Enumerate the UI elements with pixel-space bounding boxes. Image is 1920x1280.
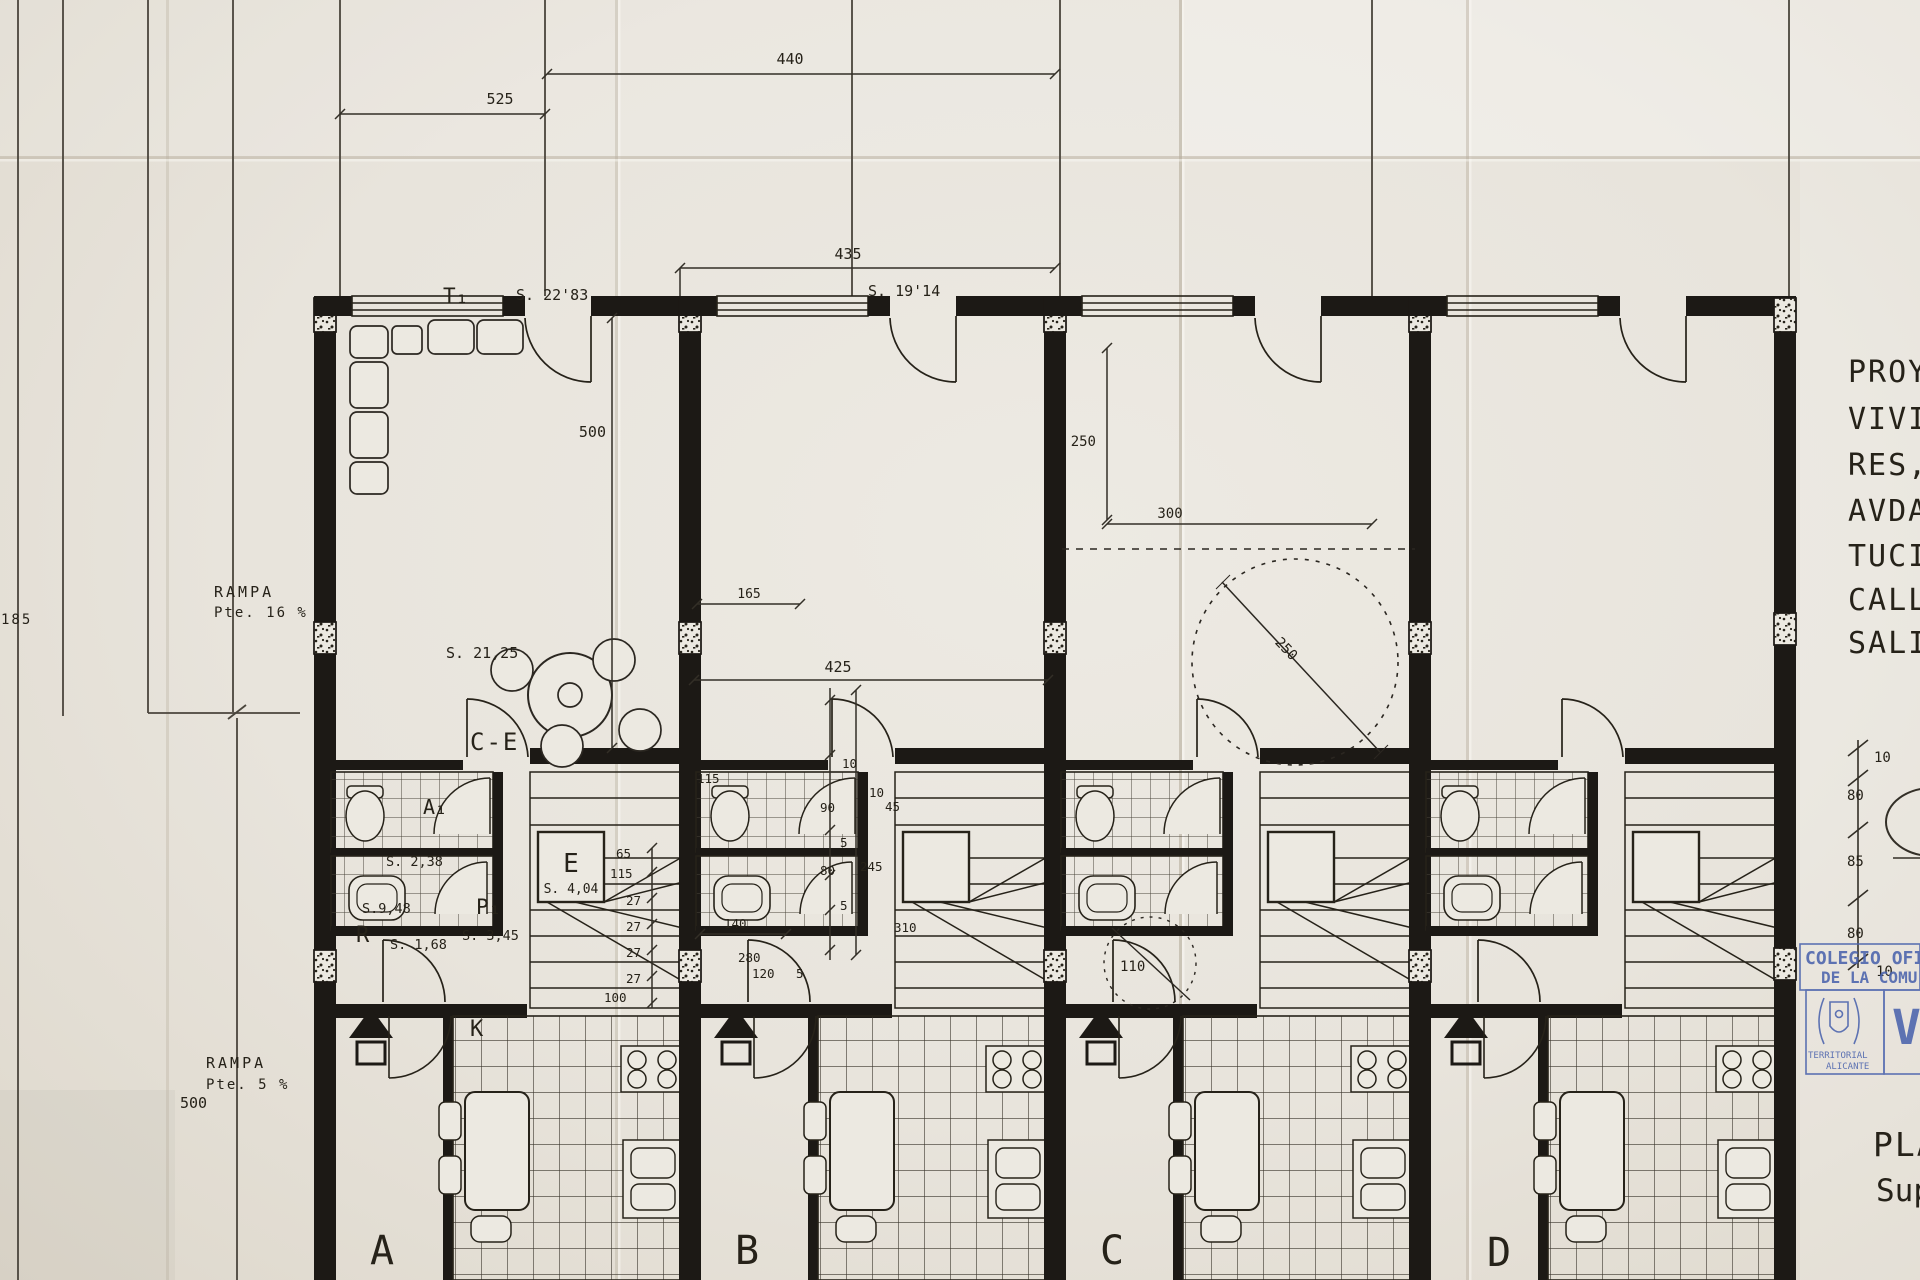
unit-letter-c: C — [1100, 1228, 1124, 1274]
dim-280: 280 — [738, 950, 761, 965]
unit-b-area: S. 19'14 — [868, 282, 940, 300]
door-label-ce: C-E — [470, 728, 519, 756]
dim-300: 300 — [1157, 506, 1182, 522]
bath-area: S. 2,38 — [386, 854, 443, 870]
project-line: RES, — [1848, 448, 1920, 483]
dim-80: 80 — [820, 863, 835, 878]
dim-310: 310 — [894, 920, 917, 935]
dim-120: 120 — [752, 966, 775, 981]
stamp-line1: COLEGIO OFICI — [1805, 948, 1920, 969]
type-area: S. 22'83 — [516, 286, 588, 304]
project-line: TUCIO — [1848, 539, 1920, 574]
project-line: SALIN — [1848, 626, 1920, 661]
stamp-sub2: ALICANTE — [1826, 1062, 1869, 1072]
dim-27b: 27 — [626, 919, 641, 934]
type-label: T₁ — [443, 284, 468, 308]
floor-plan-drawing: 185 RAMPA Pte. 16 % RAMPA Pte. 5 % 500 5… — [0, 0, 1920, 1280]
footer-plan: PLA — [1873, 1125, 1920, 1164]
hall-area: S. 3,45 — [462, 928, 519, 944]
dim-5c: 5 — [796, 966, 804, 981]
dim-65: 65 — [616, 846, 631, 861]
terrace-units — [314, 296, 1796, 1280]
dim-425: 425 — [824, 658, 851, 676]
dim-27c: 27 — [626, 945, 641, 960]
dim-440: 440 — [776, 50, 803, 68]
dim-165: 165 — [737, 587, 760, 602]
dim-245: 245 — [860, 859, 883, 874]
unit-letter-b: B — [735, 1228, 759, 1274]
dim-10b: 10 — [869, 785, 884, 800]
stamp-line2: DE LA COMU — [1821, 968, 1917, 987]
project-line: CALLE — [1848, 583, 1920, 618]
dim-depth-500: 500 — [579, 423, 606, 441]
rampa-upper-label: RAMPA — [214, 583, 274, 601]
dim-27a: 27 — [626, 893, 641, 908]
dim-115: 115 — [610, 866, 633, 881]
dim-140: 140 — [724, 916, 747, 931]
dim-115b: 115 — [697, 771, 720, 786]
living-area: S. 21,25 — [446, 644, 518, 662]
unit-d-plan — [1409, 296, 1786, 1280]
unit-c-plan — [1044, 296, 1421, 1280]
unit-b-plan — [679, 296, 1056, 1280]
architectural-plan-photo: 185 RAMPA Pte. 16 % RAMPA Pte. 5 % 500 5… — [0, 0, 1920, 1280]
rampa-lower-slope: Pte. 5 % — [206, 1077, 289, 1093]
kitchen-area: S.9,48 — [362, 901, 411, 917]
unit-letter-a: A — [370, 1228, 394, 1274]
dim-100: 100 — [604, 990, 627, 1005]
section-dim-80a: 80 — [1847, 788, 1864, 804]
end-wall — [1774, 296, 1796, 1280]
stair-area: S. 4,04 — [544, 882, 599, 897]
stair-label: E — [563, 849, 579, 879]
dim-5a: 5 — [840, 835, 848, 850]
site-labels: 185 RAMPA Pte. 16 % RAMPA Pte. 5 % 500 — [1, 583, 308, 1112]
dim-45: 45 — [885, 799, 900, 814]
section-dim-85: 85 — [1847, 854, 1864, 870]
section-dim-80b: 80 — [1847, 926, 1864, 942]
dim-27d: 27 — [626, 971, 641, 986]
store-area: S. 1,68 — [390, 937, 447, 953]
section-dim-10-top: 10 — [1874, 750, 1891, 766]
rampa-upper-slope: Pte. 16 % — [214, 605, 308, 621]
dim-250-vert: 250 — [1071, 434, 1096, 450]
dim-185: 185 — [1, 612, 32, 628]
dim-5b: 5 — [840, 898, 848, 913]
dim-90: 90 — [820, 800, 835, 815]
rampa-lower-label: RAMPA — [206, 1054, 266, 1072]
stamp-letter-v: V — [1892, 1000, 1920, 1056]
project-line: AVDA. — [1848, 494, 1920, 529]
dim-435: 435 — [834, 245, 861, 263]
dim-10: 10 — [842, 756, 857, 771]
project-line: PROYE — [1848, 355, 1920, 390]
turning-circle — [1192, 559, 1398, 765]
dim-525: 525 — [486, 90, 513, 108]
store-label: R — [356, 923, 370, 948]
unit-letter-d: D — [1487, 1230, 1511, 1276]
bath-label: A₁ — [423, 795, 447, 819]
project-line: VIVIEN — [1848, 402, 1920, 437]
stamp-sub1: TERRITORIAL — [1808, 1051, 1868, 1061]
dim-ramp-500: 500 — [180, 1094, 207, 1112]
unit-a-furniture — [350, 320, 661, 767]
dim-110: 110 — [1120, 959, 1145, 975]
kitchen-label: K — [470, 1017, 484, 1042]
footer-sup: Sup — [1876, 1173, 1920, 1209]
hall-label: P₁ — [476, 895, 501, 919]
